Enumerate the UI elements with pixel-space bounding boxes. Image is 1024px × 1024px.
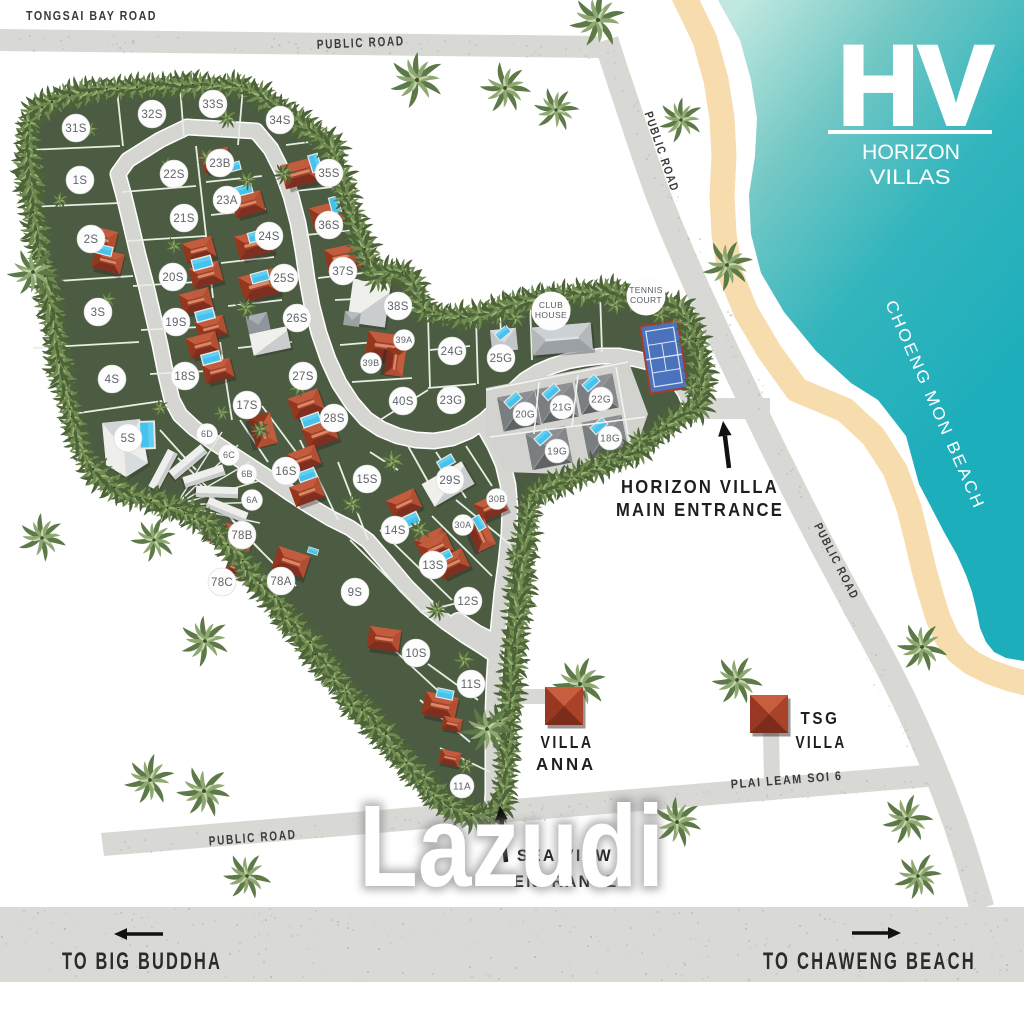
- svg-text:22S: 22S: [163, 169, 184, 181]
- svg-text:6C: 6C: [223, 450, 235, 460]
- svg-text:33S: 33S: [202, 99, 223, 111]
- svg-text:9S: 9S: [348, 587, 363, 599]
- svg-text:TO BIG BUDDHA: TO BIG BUDDHA: [62, 948, 222, 975]
- svg-text:38S: 38S: [387, 301, 408, 313]
- svg-text:23A: 23A: [216, 195, 237, 207]
- svg-text:20G: 20G: [515, 410, 535, 421]
- svg-text:10S: 10S: [405, 648, 426, 660]
- svg-text:11S: 11S: [461, 679, 482, 691]
- svg-text:39A: 39A: [396, 335, 413, 345]
- svg-text:25G: 25G: [490, 353, 513, 365]
- svg-text:TSG: TSG: [801, 708, 840, 728]
- svg-text:VILLA: VILLA: [541, 732, 594, 752]
- svg-text:35S: 35S: [318, 168, 339, 180]
- svg-text:27S: 27S: [292, 371, 313, 383]
- svg-text:VILLA: VILLA: [796, 732, 847, 752]
- svg-text:ANNA: ANNA: [536, 754, 596, 774]
- svg-text:18G: 18G: [600, 434, 620, 445]
- svg-text:MAIN ENTRANCE: MAIN ENTRANCE: [616, 500, 784, 520]
- svg-text:HORIZON: HORIZON: [862, 141, 960, 164]
- svg-text:CLUB: CLUB: [539, 300, 563, 310]
- svg-text:39B: 39B: [363, 358, 380, 368]
- svg-text:5S: 5S: [121, 433, 136, 445]
- svg-text:21S: 21S: [173, 213, 194, 225]
- svg-text:17S: 17S: [236, 400, 257, 412]
- svg-text:32S: 32S: [141, 109, 162, 121]
- svg-text:19S: 19S: [165, 317, 186, 329]
- svg-text:HOUSE: HOUSE: [535, 310, 567, 320]
- svg-text:20S: 20S: [162, 272, 183, 284]
- svg-text:14S: 14S: [384, 525, 405, 537]
- svg-text:40S: 40S: [392, 396, 413, 408]
- svg-text:6B: 6B: [241, 469, 253, 479]
- svg-text:30B: 30B: [489, 494, 506, 504]
- svg-text:TENNIS: TENNIS: [629, 285, 663, 295]
- svg-text:18S: 18S: [174, 371, 195, 383]
- svg-text:HORIZON VILLA: HORIZON VILLA: [621, 477, 779, 497]
- svg-text:6D: 6D: [201, 429, 213, 439]
- svg-text:VILLAS: VILLAS: [870, 166, 951, 189]
- svg-text:37S: 37S: [332, 266, 353, 278]
- svg-text:24G: 24G: [441, 346, 464, 358]
- svg-text:34S: 34S: [269, 115, 290, 127]
- svg-text:28S: 28S: [323, 413, 344, 425]
- svg-text:25S: 25S: [273, 273, 294, 285]
- svg-text:31S: 31S: [65, 123, 86, 135]
- svg-text:TO CHAWENG BEACH: TO CHAWENG BEACH: [763, 948, 976, 975]
- svg-text:78C: 78C: [211, 577, 233, 589]
- svg-text:12S: 12S: [457, 596, 478, 608]
- svg-text:30A: 30A: [455, 520, 472, 530]
- svg-text:COURT: COURT: [630, 295, 662, 305]
- svg-text:6A: 6A: [246, 495, 258, 505]
- svg-text:16S: 16S: [275, 466, 296, 478]
- svg-text:2S: 2S: [84, 234, 99, 246]
- svg-text:1S: 1S: [73, 175, 88, 187]
- svg-text:23G: 23G: [440, 395, 463, 407]
- svg-text:22G: 22G: [591, 395, 611, 406]
- svg-text:15S: 15S: [356, 474, 377, 486]
- svg-text:19G: 19G: [547, 447, 567, 458]
- svg-text:78B: 78B: [231, 530, 252, 542]
- svg-text:21G: 21G: [552, 403, 572, 414]
- svg-text:29S: 29S: [439, 475, 460, 487]
- svg-text:23B: 23B: [209, 158, 230, 170]
- svg-text:13S: 13S: [422, 560, 443, 572]
- svg-text:3S: 3S: [91, 307, 106, 319]
- svg-text:TONGSAI BAY ROAD: TONGSAI BAY ROAD: [26, 8, 157, 23]
- svg-text:36S: 36S: [318, 220, 339, 232]
- svg-text:24S: 24S: [258, 231, 279, 243]
- svg-text:Lazudi: Lazudi: [359, 781, 664, 911]
- svg-text:HV: HV: [838, 23, 993, 148]
- svg-text:78A: 78A: [270, 576, 291, 588]
- svg-text:26S: 26S: [286, 313, 307, 325]
- svg-text:4S: 4S: [105, 374, 120, 386]
